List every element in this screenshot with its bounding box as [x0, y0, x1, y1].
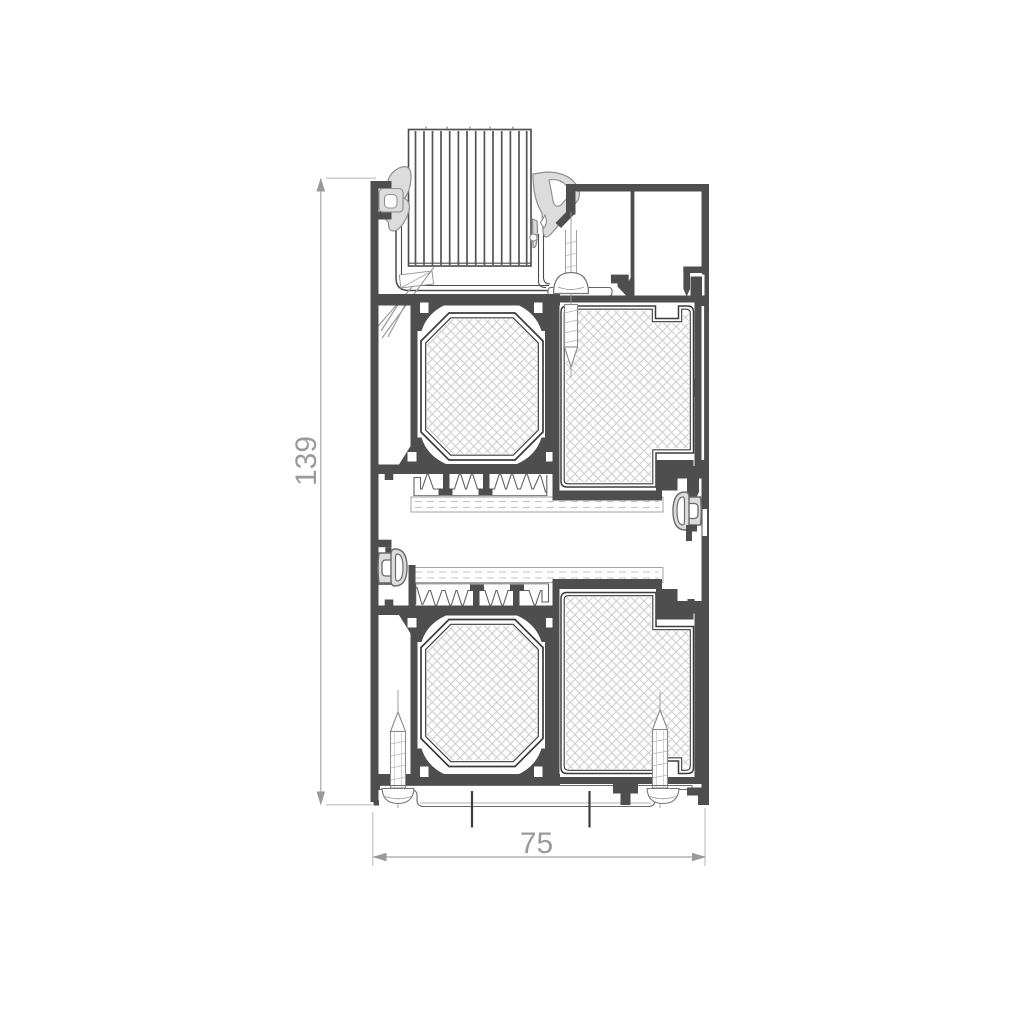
svg-text:139: 139: [290, 436, 323, 486]
svg-text:75: 75: [520, 827, 553, 860]
